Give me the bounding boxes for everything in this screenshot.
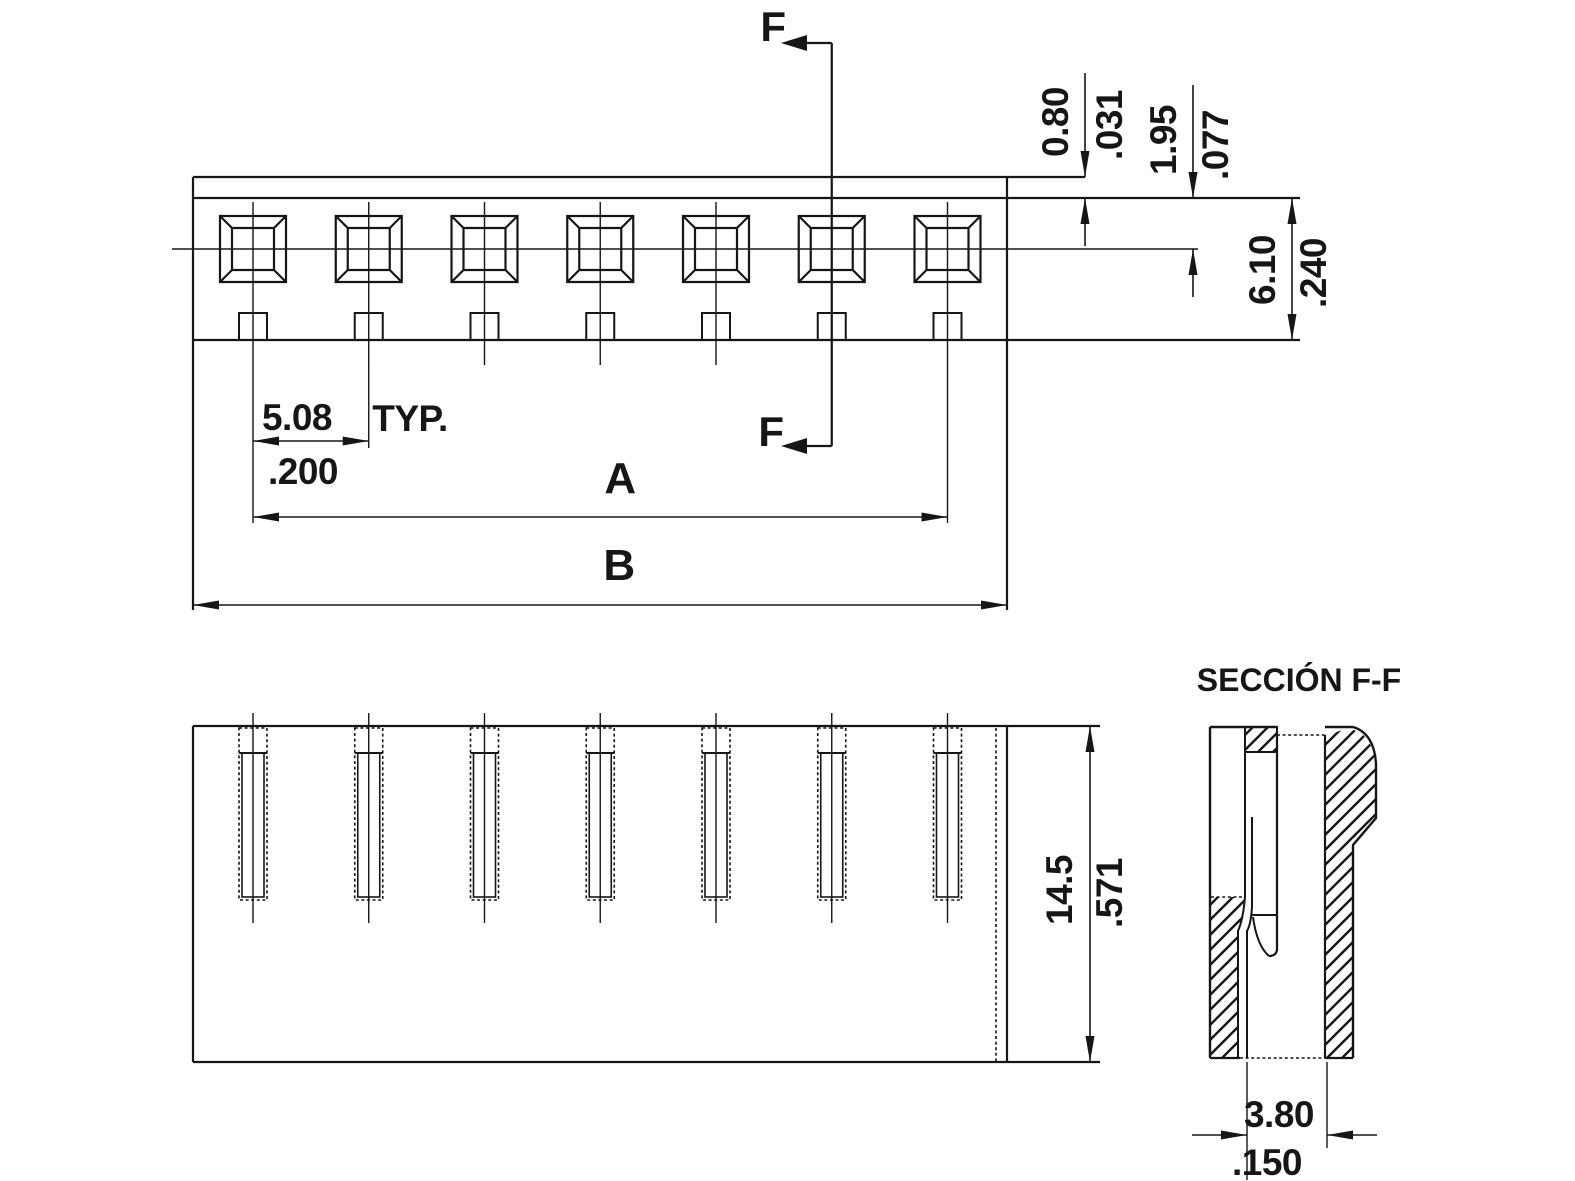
dim-slot-width: 3.80 .150 (1192, 1062, 1377, 1181)
dim-b-arrow-left (193, 601, 219, 610)
dim-pitch-mm: 5.08 (262, 397, 332, 438)
dim-pitch: 5.08 .200 TYP. (253, 397, 448, 492)
dim-b: B (193, 541, 1007, 610)
dim-pin-offset-in: .077 (1195, 110, 1236, 180)
section-hatching (1211, 727, 1376, 1057)
dim-wall-arrow-bottom (1081, 198, 1090, 224)
cut-arrow-bottom (781, 438, 807, 454)
hatch-top-cap (1245, 727, 1277, 752)
section-letter-top: F (760, 3, 785, 50)
front-view-body-outline (193, 726, 1100, 1062)
pin-slot (934, 713, 962, 923)
pin-slot (239, 713, 267, 923)
dim-height-in: .571 (1089, 858, 1130, 928)
dim-slot-arrow-right (1327, 1131, 1353, 1140)
pin-slot (702, 713, 730, 923)
dim-body-depth-in: .240 (1293, 238, 1334, 308)
channel-left-edge (1269, 735, 1277, 956)
dim-wall: 0.80 .031 (1035, 73, 1130, 246)
dim-wall-mm: 0.80 (1035, 87, 1076, 157)
dim-pin-offset: 1.95 .077 (1143, 85, 1236, 297)
dim-pitch-arrow-right (343, 437, 369, 446)
dim-pitch-in: .200 (268, 451, 338, 492)
dim-b-label: B (603, 541, 634, 590)
section-title: SECCIÓN F-F (1197, 662, 1401, 698)
dim-body-depth-arrow-bottom (1288, 314, 1297, 340)
dim-height-arrow-top (1086, 726, 1095, 752)
dim-pitch-typ: TYP. (372, 398, 447, 439)
pin-slot (471, 713, 499, 923)
contact-hook-curve (1253, 917, 1269, 956)
dim-a: A (253, 454, 948, 522)
dim-height-arrow-bottom (1086, 1036, 1095, 1062)
dim-slot-mm: 3.80 (1244, 1094, 1314, 1135)
technical-drawing: F F 0.80 .031 1.95 .077 6.10 .240 (0, 0, 1575, 1181)
dim-b-arrow-right (981, 601, 1007, 610)
pin-slots (239, 713, 962, 923)
pin-slot (355, 713, 383, 923)
dim-body-depth: 6.10 .240 (1242, 198, 1334, 340)
dim-a-arrow-left (253, 513, 279, 522)
dim-wall-in: .031 (1089, 90, 1130, 160)
dim-pin-offset-arrow-bottom (1189, 249, 1198, 275)
contact-beam-right (1247, 817, 1252, 1058)
dim-slot-in: .150 (1232, 1142, 1302, 1181)
top-view: F F 0.80 .031 1.95 .077 6.10 .240 (172, 3, 1334, 610)
dim-height-mm: 14.5 (1039, 855, 1080, 925)
dim-a-label: A (604, 454, 635, 503)
drawing-sheet: F F 0.80 .031 1.95 .077 6.10 .240 (0, 0, 1575, 1181)
hatch-right-wall (1325, 728, 1376, 1057)
dim-a-arrow-right (922, 513, 948, 522)
section-view: SECCIÓN F-F (1192, 662, 1401, 1181)
dim-pin-offset-mm: 1.95 (1143, 105, 1184, 175)
dim-body-depth-mm: 6.10 (1242, 235, 1283, 305)
extension-lines (253, 365, 948, 523)
front-view: 14.5 .571 (193, 713, 1130, 1062)
pin-slot (818, 713, 846, 923)
dim-body-depth-arrow-top (1288, 198, 1297, 224)
pin-slot (586, 713, 614, 923)
dim-height: 14.5 .571 (1039, 726, 1130, 1062)
section-letter-bottom: F (758, 408, 783, 455)
hatch-left-wall (1211, 897, 1245, 1057)
